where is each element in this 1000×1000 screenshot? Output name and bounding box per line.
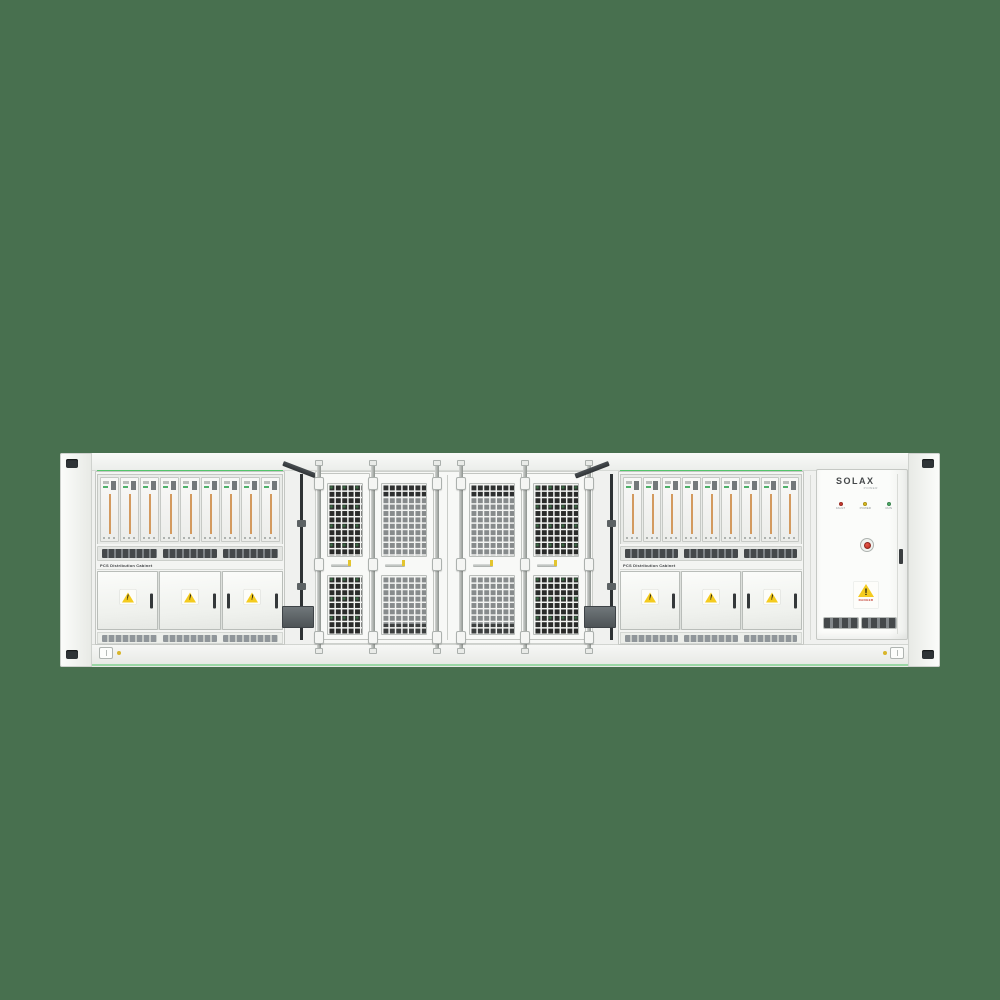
hazard-triangle (644, 592, 656, 602)
module-accent-strip (730, 494, 732, 534)
left-door-row (97, 571, 283, 630)
module-label (764, 481, 770, 484)
module-display (192, 481, 197, 490)
right-vent-band (620, 546, 802, 561)
hinge-bracket (368, 558, 378, 571)
door-handle (150, 593, 153, 608)
module-label (123, 481, 129, 484)
rod-bracket (607, 520, 616, 527)
lock-rod (371, 464, 375, 650)
rod-cap (315, 648, 323, 654)
left-vent-band (97, 546, 283, 561)
rod-cap (369, 460, 377, 466)
module-run-led (244, 486, 249, 488)
mesh-door (374, 473, 434, 640)
cabinet-door (742, 571, 802, 630)
hinge-bracket (520, 631, 530, 644)
module-display (131, 481, 136, 490)
module-accent-strip (210, 494, 212, 534)
vent-slots (744, 635, 797, 642)
module-label (783, 481, 789, 484)
emergency-stop-button (860, 538, 874, 552)
right-module-bay (620, 474, 802, 544)
warning-text: DANGER (859, 598, 874, 602)
left-cabinet-label: PCS Distribution Cabinet (97, 562, 283, 570)
mesh-door (526, 473, 586, 640)
hinge-bracket (432, 631, 442, 644)
module-run-led (646, 486, 651, 488)
door-handle (227, 593, 230, 608)
mesh-grille-upper (469, 483, 515, 557)
module-label (264, 481, 270, 484)
module-run-led (744, 486, 749, 488)
battery-module (261, 477, 280, 542)
hazard-triangle (705, 592, 717, 602)
module-run-led (626, 486, 631, 488)
led-label: POWER (860, 507, 871, 510)
battery-module (662, 477, 681, 542)
battery-module (241, 477, 260, 542)
rod-cap (585, 460, 593, 466)
vent-slots (102, 635, 157, 642)
module-run-led (685, 486, 690, 488)
status-led: RUN (886, 502, 893, 510)
hinge-bracket (432, 558, 442, 571)
cabinet-door (159, 571, 220, 630)
status-led-row: FAULTPOWERRUN (836, 502, 892, 510)
led-label: FAULT (836, 507, 845, 510)
module-display (791, 481, 796, 490)
module-run-led (264, 486, 269, 488)
module-display (732, 481, 737, 490)
module-display (232, 481, 237, 490)
module-accent-strip (190, 494, 192, 534)
status-led: FAULT (836, 502, 845, 510)
module-label (724, 481, 730, 484)
mesh-grille-lower (381, 575, 427, 635)
module-run-led (724, 486, 729, 488)
module-display (673, 481, 678, 490)
hinge-bracket (584, 631, 594, 644)
module-display (771, 481, 776, 490)
module-label (665, 481, 671, 484)
warning-triangle-icon (703, 590, 719, 605)
corner-casting-top-left (66, 459, 78, 468)
rod-bracket (297, 520, 306, 527)
hinge-bracket (314, 558, 324, 571)
battery-module (201, 477, 220, 542)
status-led: POWER (860, 502, 871, 510)
right-door-row (620, 571, 802, 630)
module-run-led (143, 486, 148, 488)
vent-slots (163, 549, 218, 558)
module-accent-strip (250, 494, 252, 534)
hinge-bracket (314, 631, 324, 644)
hinge-bracket (368, 631, 378, 644)
vent-slots (744, 549, 797, 558)
module-display (693, 481, 698, 490)
cabinet-door (97, 571, 158, 630)
estop-cap (864, 542, 871, 549)
latch-warning-tag (402, 560, 405, 566)
battery-module (120, 477, 139, 542)
hinge-bracket (314, 477, 324, 490)
corner-casting-bottom-right (922, 650, 934, 659)
door-latch (469, 560, 515, 570)
mesh-grille-upper (533, 483, 579, 557)
module-run-led (163, 486, 168, 488)
mesh-grille-lower (533, 575, 579, 635)
module-label (183, 481, 189, 484)
battery-module (643, 477, 662, 542)
module-label (646, 481, 652, 484)
mesh-door (462, 473, 522, 640)
lock-rod (317, 464, 321, 650)
hinge-bracket (520, 477, 530, 490)
vent-slots (102, 549, 157, 558)
right-bottom-vent (620, 632, 802, 644)
solax-control-cabinet (816, 469, 908, 640)
vent-slots (625, 549, 678, 558)
mesh-grille-lower (469, 575, 515, 635)
right-cabinet-label: PCS Distribution Cabinet (620, 562, 802, 570)
vent-slots (684, 635, 737, 642)
warning-triangle-icon (182, 590, 198, 605)
module-run-led (204, 486, 209, 488)
module-display (752, 481, 757, 490)
lock-rod (523, 464, 527, 650)
module-display (712, 481, 717, 490)
hinge-bracket (520, 558, 530, 571)
mesh-grille-upper (327, 483, 363, 557)
module-accent-strip (270, 494, 272, 534)
module-run-led (183, 486, 188, 488)
module-accent-strip (789, 494, 791, 534)
module-accent-strip (770, 494, 772, 534)
solax-door-seam (897, 474, 898, 634)
battery-module (721, 477, 740, 542)
scene: PCS Distribution Cabinet PCS Distributio… (0, 0, 1000, 1000)
module-label (744, 481, 750, 484)
module-run-led (665, 486, 670, 488)
vent-slots (625, 635, 678, 642)
module-run-led (103, 486, 108, 488)
module-display (272, 481, 277, 490)
battery-module (221, 477, 240, 542)
warning-triangle-icon (858, 584, 874, 597)
module-label (143, 481, 149, 484)
solax-logo: SOLAX POWER (836, 477, 878, 490)
warning-triangle-icon (764, 590, 780, 605)
door-latch (327, 560, 363, 570)
center-door-seam (447, 475, 448, 640)
solax-vent (861, 617, 897, 629)
battery-module (180, 477, 199, 542)
hazard-triangle (766, 592, 778, 602)
service-socket-right (890, 647, 904, 659)
module-accent-strip (230, 494, 232, 534)
hinge-bracket (456, 477, 466, 490)
mesh-grille-upper (381, 483, 427, 557)
latch-warning-tag (348, 560, 351, 566)
vent-slots (684, 549, 737, 558)
battery-module (100, 477, 119, 542)
module-label (705, 481, 711, 484)
module-accent-strip (149, 494, 151, 534)
hinge-bracket (368, 477, 378, 490)
module-accent-strip (711, 494, 713, 534)
module-display (634, 481, 639, 490)
module-display (252, 481, 257, 490)
cable-duct (584, 606, 616, 628)
module-accent-strip (632, 494, 634, 534)
lock-rod (459, 464, 463, 650)
door-handle (733, 593, 736, 608)
rod-cap (521, 648, 529, 654)
rod-cap (369, 648, 377, 654)
door-handle (275, 593, 278, 608)
module-display (653, 481, 658, 490)
hinge-bracket (584, 477, 594, 490)
rod-cap (457, 648, 465, 654)
container-top-rail (92, 453, 908, 471)
wall-seam (810, 475, 811, 640)
door-handle (213, 593, 216, 608)
cabinet-door (681, 571, 741, 630)
module-accent-strip (109, 494, 111, 534)
rod-cap (457, 460, 465, 466)
left-module-bay (97, 474, 283, 544)
rod-cap (315, 460, 323, 466)
vent-slots (223, 549, 278, 558)
module-accent-strip (652, 494, 654, 534)
high-voltage-warning-sticker: DANGER (854, 582, 878, 608)
corner-post-left (60, 453, 92, 667)
rod-cap (585, 648, 593, 654)
indicator-dot-right (883, 651, 887, 655)
latch-warning-tag (490, 560, 493, 566)
corner-casting-bottom-left (66, 650, 78, 659)
hazard-triangle (122, 592, 134, 602)
brand-text: SOLAX (836, 477, 878, 486)
rod-bracket (607, 583, 616, 590)
solax-door-handle (899, 549, 903, 564)
cabinet-door (620, 571, 680, 630)
rod-cap (521, 460, 529, 466)
corner-post-right (908, 453, 940, 667)
door-handle (672, 593, 675, 608)
battery-module (682, 477, 701, 542)
module-label (224, 481, 230, 484)
module-accent-strip (129, 494, 131, 534)
module-label (204, 481, 210, 484)
warning-triangle-icon (642, 590, 658, 605)
door-latch (381, 560, 427, 570)
battery-module (160, 477, 179, 542)
module-label (626, 481, 632, 484)
hazard-triangle (246, 592, 258, 602)
indicator-dot-left (117, 651, 121, 655)
corner-casting-top-right (922, 459, 934, 468)
hinge-bracket (584, 558, 594, 571)
left-bottom-vent (97, 632, 283, 644)
latch-warning-tag (554, 560, 557, 566)
hinge-bracket (456, 631, 466, 644)
module-accent-strip (750, 494, 752, 534)
solax-vent (823, 617, 859, 629)
rod-cap (433, 648, 441, 654)
module-display (111, 481, 116, 490)
brand-subtext: POWER (836, 486, 878, 490)
door-latch (533, 560, 579, 570)
battery-module (702, 477, 721, 542)
module-run-led (783, 486, 788, 488)
module-display (171, 481, 176, 490)
vent-slots (223, 635, 278, 642)
module-run-led (123, 486, 128, 488)
ground-gap-highlight (92, 664, 908, 666)
vent-slots (163, 635, 218, 642)
warning-triangle-icon (244, 590, 260, 605)
battery-module (140, 477, 159, 542)
module-label (163, 481, 169, 484)
module-label (244, 481, 250, 484)
mesh-grille-lower (327, 575, 363, 635)
module-accent-strip (671, 494, 673, 534)
module-display (151, 481, 156, 490)
module-accent-strip (170, 494, 172, 534)
mesh-door (320, 473, 370, 640)
door-handle (794, 593, 797, 608)
battery-module (741, 477, 760, 542)
hinge-bracket (432, 477, 442, 490)
module-accent-strip (691, 494, 693, 534)
lock-rod (435, 464, 439, 650)
hinge-bracket (456, 558, 466, 571)
battery-module (623, 477, 642, 542)
module-run-led (764, 486, 769, 488)
cable-duct (282, 606, 314, 628)
module-run-led (705, 486, 710, 488)
module-run-led (224, 486, 229, 488)
module-display (212, 481, 217, 490)
hazard-triangle (184, 592, 196, 602)
cabinet-door (222, 571, 283, 630)
rod-bracket (297, 583, 306, 590)
battery-module (761, 477, 780, 542)
module-label (685, 481, 691, 484)
rod-cap (433, 460, 441, 466)
module-label (103, 481, 109, 484)
led-label: RUN (886, 507, 893, 510)
service-socket-left (99, 647, 113, 659)
door-handle (747, 593, 750, 608)
battery-module (780, 477, 799, 542)
warning-triangle-icon (120, 590, 136, 605)
